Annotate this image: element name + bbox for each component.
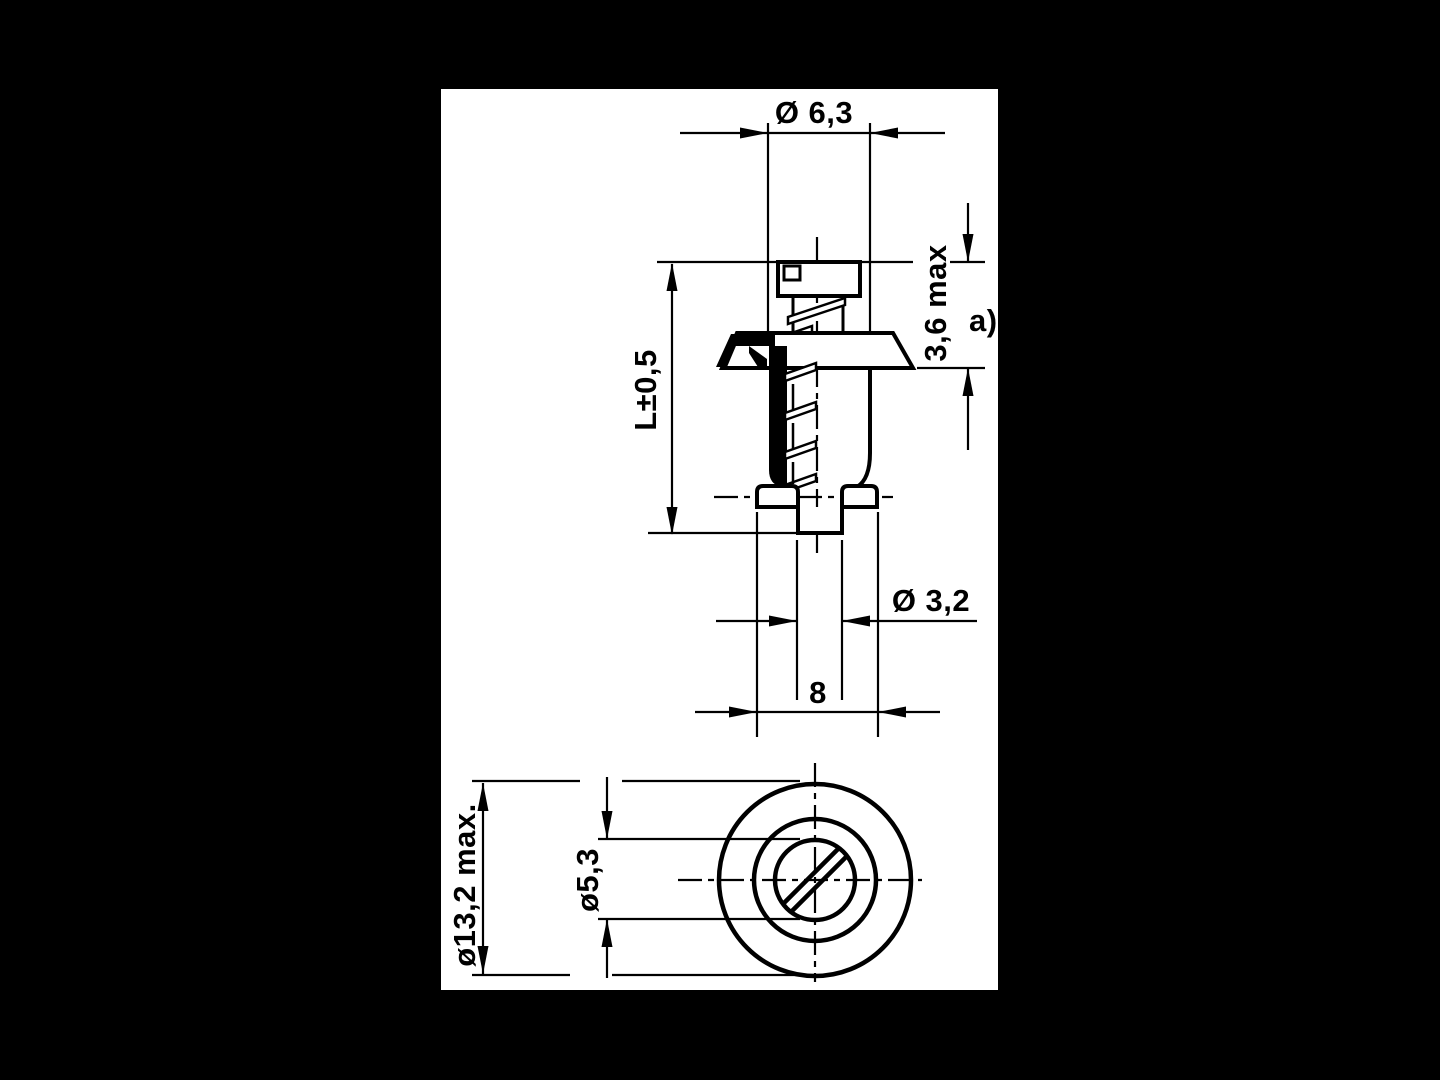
label-foot-width: 8 [809,675,827,710]
foot-flange-right [842,486,877,507]
technical-drawing: Ø 6,3 3,6 max a) L±0,5 Ø 3,2 8 [0,0,1440,1080]
screenshot-stage: Ø 6,3 3,6 max a) L±0,5 Ø 3,2 8 [0,0,1440,1080]
anti-rotation-tab [731,334,775,346]
label-slot-circle-diameter: ø5,3 [570,848,605,912]
foot-flange-left [757,486,798,507]
label-length: L±0,5 [628,349,663,431]
label-head-diameter: Ø 6,3 [775,95,853,130]
label-screw-tip-diameter: Ø 3,2 [892,583,970,618]
label-footnote-a: a) [969,303,998,338]
label-protrusion: 3,6 max [918,244,953,362]
drawing-sheet [441,89,998,990]
label-flange-diameter: ø13,2 max. [447,803,482,967]
screw-tip [798,507,842,533]
screw-slot-section [784,266,800,280]
